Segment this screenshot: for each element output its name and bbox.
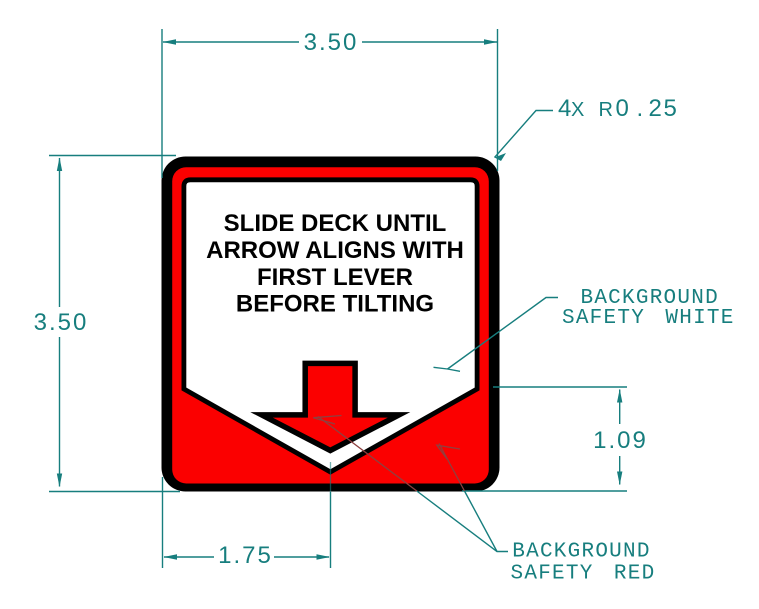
svg-text:BACKGROUND: BACKGROUND — [512, 540, 650, 563]
svg-text:3.50: 3.50 — [304, 29, 359, 56]
svg-text:FIRST LEVER: FIRST LEVER — [257, 264, 413, 291]
svg-text:3.50: 3.50 — [34, 309, 89, 336]
svg-text:1.75: 1.75 — [218, 542, 273, 569]
svg-text:SAFETY WHITE: SAFETY WHITE — [562, 307, 735, 330]
svg-text:4XR0.25: 4XR0.25 — [558, 95, 677, 122]
svg-text:ARROW ALIGNS WITH: ARROW ALIGNS WITH — [206, 237, 464, 264]
svg-text:SLIDE DECK UNTIL: SLIDE DECK UNTIL — [224, 210, 447, 237]
svg-text:1.09: 1.09 — [593, 427, 648, 454]
svg-text:BEFORE TILTING: BEFORE TILTING — [236, 291, 434, 318]
svg-text:SAFETY RED: SAFETY RED — [511, 562, 656, 585]
